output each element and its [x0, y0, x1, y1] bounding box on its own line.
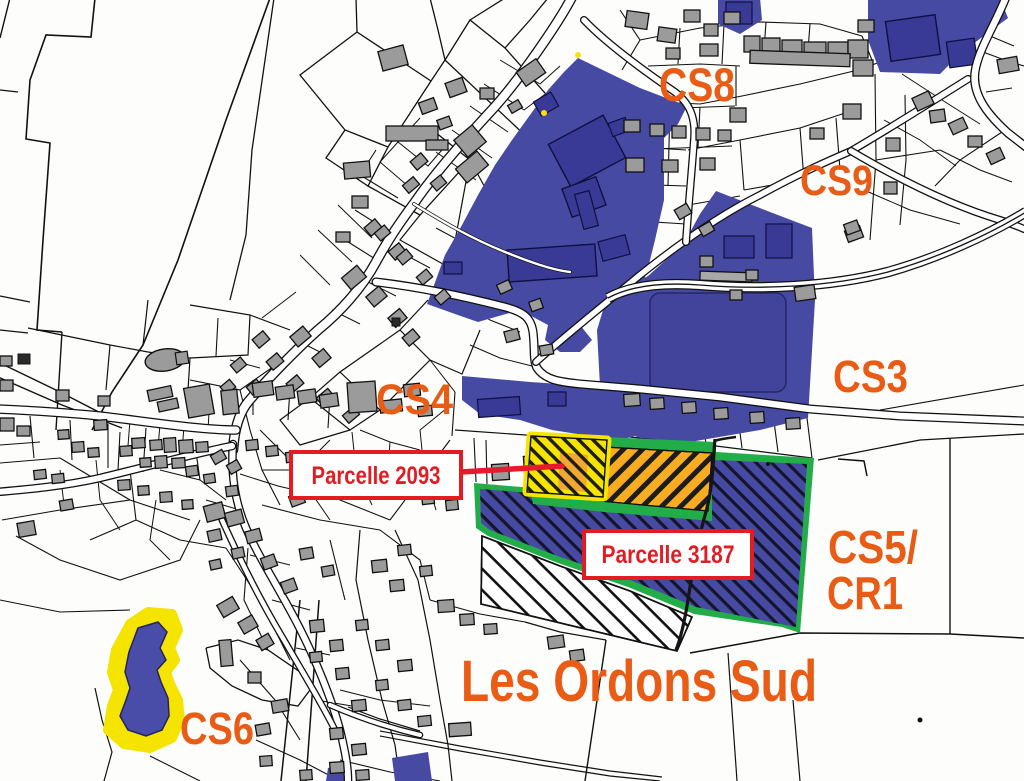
svg-text:CS5/: CS5/: [828, 521, 918, 573]
svg-text:CS3: CS3: [833, 351, 908, 402]
svg-text:Parcelle 2093: Parcelle 2093: [312, 462, 441, 490]
svg-text:Parcelle 3187: Parcelle 3187: [602, 541, 735, 569]
svg-text:Les Ordons Sud: Les Ordons Sud: [461, 649, 817, 714]
svg-text:CR1: CR1: [827, 567, 903, 619]
svg-text:CS6: CS6: [180, 703, 254, 754]
svg-text:CS9: CS9: [800, 157, 873, 205]
svg-text:CS4: CS4: [376, 376, 453, 424]
svg-text:CS8: CS8: [659, 58, 735, 111]
